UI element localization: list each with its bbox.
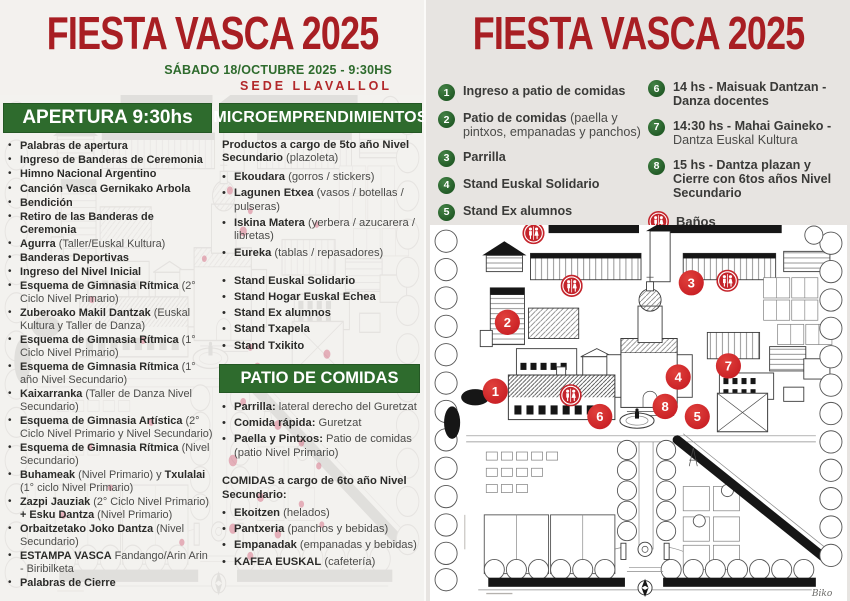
section-header-patio-de-comidas: PATIO DE COMIDAS	[219, 364, 420, 393]
bullet-icon: •	[8, 154, 20, 167]
legend-item: 714:30 hs - Mahai Gaineko - Dantza Euska…	[648, 119, 848, 148]
legend-item: 1Ingreso a patio de comidas	[438, 84, 644, 101]
bullet-icon: •	[8, 361, 20, 387]
bullet-icon: •	[8, 388, 20, 414]
list-item: •Himno Nacional Argentino	[8, 168, 213, 181]
bullet-icon: •	[8, 183, 20, 196]
legend-number-badge: 7	[648, 119, 665, 136]
list-item: •Empanadak (empanadas y bebidas)	[222, 539, 421, 553]
event-venue: SEDE LLAVALLOL	[164, 78, 392, 94]
map-marker: 1	[483, 379, 508, 404]
bullet-icon: •	[222, 417, 234, 431]
list-item: •Stand Euskal Solidario	[222, 275, 421, 289]
list-item: •Canción Vasca Gernikako Arbola	[8, 183, 213, 196]
map-marker: 3	[679, 270, 704, 295]
svg-text:4: 4	[675, 370, 683, 385]
micro-column: Productos a cargo de 5to año Nivel Secun…	[222, 139, 421, 572]
bullet-icon: •	[8, 469, 20, 495]
section-header-microemprendimientos: MICROEMPRENDIMIENTOS	[219, 103, 422, 133]
bullet-icon: •	[8, 252, 20, 265]
legend-column-2: 614 hs - Maisuak Dantzan - Danza docente…	[648, 80, 848, 232]
event-date-venue: SÁBADO 18/OCTUBRE 2025 - 9:30HS SEDE LLA…	[164, 63, 392, 94]
list-item: •Bendición	[8, 197, 213, 210]
legend-item: 815 hs - Dantza plazan y Cierre con 6tos…	[648, 158, 848, 201]
bullet-icon: •	[222, 523, 234, 537]
program-page: FIESTA VASCA 2025 SÁBADO 18/OCTUBRE 2025…	[0, 0, 424, 601]
list-item: •Orbaitzetako Joko Dantza (Nivel Secunda…	[8, 523, 213, 549]
bullet-icon: •	[8, 577, 20, 590]
legend-number-badge: 2	[438, 111, 455, 128]
legend-number-badge: 1	[438, 84, 455, 101]
list-item: •Stand Txikito	[222, 340, 421, 354]
list-item: •Esquema de Gimnasia Artística (2° Ciclo…	[8, 415, 213, 441]
bullet-icon: •	[222, 291, 234, 305]
map-marker: 5	[685, 404, 710, 429]
map-page: FIESTA VASCA 2025 1Ingreso a patio de co…	[426, 0, 850, 601]
micro-products-list: •Ekoudara (gorros / stickers)•Lagunen Et…	[222, 171, 421, 260]
list-item: •Esquema de Gimnasia Rítmica (1° año Niv…	[8, 361, 213, 387]
bullet-icon: •	[222, 171, 234, 185]
legend-number-badge: 4	[438, 177, 455, 194]
bullet-icon: •	[8, 140, 20, 153]
svg-text:2: 2	[504, 315, 511, 330]
list-item: •Palabras de apertura	[8, 140, 213, 153]
map-banos-icon	[560, 384, 582, 406]
micro-intro: Productos a cargo de 5to año Nivel Secun…	[222, 139, 421, 166]
bullet-icon: •	[222, 433, 234, 460]
bullet-icon: •	[222, 539, 234, 553]
bullet-icon: •	[222, 340, 234, 354]
legend-item: 614 hs - Maisuak Dantzan - Danza docente…	[648, 80, 848, 109]
list-item: •Esquema de Gimnasia Rítmica (1° Ciclo N…	[8, 334, 213, 360]
svg-text:6: 6	[596, 409, 603, 424]
list-item: •Paella y Pintxos: Patio de comidas (pat…	[222, 433, 421, 460]
svg-text:5: 5	[694, 409, 701, 424]
legend-item: 4Stand Euskal Solidario	[438, 177, 644, 194]
map-marker: 8	[653, 394, 678, 419]
svg-text:8: 8	[661, 399, 668, 414]
bullet-icon: •	[8, 496, 20, 522]
list-item: •Kaixarranka (Taller de Danza Nivel Secu…	[8, 388, 213, 414]
map-banos-icon	[561, 275, 583, 297]
bullet-icon: •	[222, 401, 234, 415]
bullet-icon: •	[8, 211, 20, 237]
bullet-icon: •	[222, 217, 234, 244]
list-item: •Esquema de Gimnasia Rítmica (2° Ciclo N…	[8, 280, 213, 306]
legend-item: 3Parrilla	[438, 150, 644, 167]
legend-number-badge: 5	[438, 204, 455, 221]
bullet-icon: •	[8, 415, 20, 441]
list-item: •Pantxeria (panchos y bebidas)	[222, 523, 421, 537]
event-date: SÁBADO 18/OCTUBRE 2025 - 9:30HS	[164, 63, 392, 78]
map-marker: 7	[716, 353, 741, 378]
list-item: •Stand Hogar Euskal Echea	[222, 291, 421, 305]
bullet-icon: •	[222, 507, 234, 521]
bullet-icon: •	[222, 187, 234, 214]
legend-item: 2Patio de comidas (paella y pintxos, emp…	[438, 111, 644, 140]
apertura-program-list: •Palabras de apertura•Ingreso de Bandera…	[8, 140, 213, 592]
list-item: •Eureka (tablas / repasadores)	[222, 247, 421, 261]
patio-list: •Parrilla: lateral derecho del Guretzat•…	[222, 401, 421, 461]
list-item: •Esquema de Gimnasia Rítmica (Nivel Secu…	[8, 442, 213, 468]
bullet-icon: •	[8, 197, 20, 210]
svg-text:1: 1	[492, 384, 499, 399]
svg-text:7: 7	[725, 358, 732, 373]
page-title: FIESTA VASCA 2025	[0, 6, 424, 60]
map-banos-icon	[716, 270, 738, 292]
list-item: •Zuberoako Makil Dantzak (Euskal Kultura…	[8, 307, 213, 333]
map-marker: 2	[495, 310, 520, 335]
bullet-icon: •	[222, 307, 234, 321]
list-item: •Agurra (Taller/Euskal Kultura)	[8, 238, 213, 251]
map-signature: Biko	[811, 589, 833, 599]
bullet-icon: •	[8, 266, 20, 279]
map-marker: 6	[587, 404, 612, 429]
list-item: •Palabras de Cierre	[8, 577, 213, 590]
bullet-icon: •	[222, 323, 234, 337]
page-title: FIESTA VASCA 2025	[426, 6, 850, 60]
list-item: •Parrilla: lateral derecho del Guretzat	[222, 401, 421, 415]
legend-item: 5Stand Ex alumnos	[438, 204, 644, 221]
map-legend: 1Ingreso a patio de comidas2Patio de com…	[432, 76, 846, 225]
list-item: •Retiro de las Banderas de Ceremonia	[8, 211, 213, 237]
site-map-svg: 12345678 Biko	[430, 225, 847, 601]
micro-stands-list: •Stand Euskal Solidario•Stand Hogar Eusk…	[222, 275, 421, 353]
bullet-icon: •	[8, 238, 20, 251]
list-item: •Ingreso de Banderas de Ceremonia	[8, 154, 213, 167]
comidas-list: •Ekoitzen (helados)•Pantxeria (panchos y…	[222, 507, 421, 569]
bullet-icon: •	[8, 550, 20, 576]
list-item: •Lagunen Etxea (vasos / botellas / pulse…	[222, 187, 421, 214]
svg-text:3: 3	[688, 275, 695, 290]
bullet-icon: •	[8, 307, 20, 333]
list-item: •KAFEA EUSKAL (cafetería)	[222, 556, 421, 570]
bullet-icon: •	[8, 168, 20, 181]
list-item: •Stand Ex alumnos	[222, 307, 421, 321]
legend-column-2-items: 614 hs - Maisuak Dantzan - Danza docente…	[648, 80, 848, 201]
section-header-apertura: APERTURA 9:30hs	[3, 103, 212, 133]
bullet-icon: •	[222, 247, 234, 261]
bullet-icon: •	[8, 442, 20, 468]
bullet-icon: •	[8, 523, 20, 549]
list-item: •Ekoudara (gorros / stickers)	[222, 171, 421, 185]
map-marker: 4	[666, 364, 691, 389]
bullet-icon: •	[222, 556, 234, 570]
list-item: •Stand Txapela	[222, 323, 421, 337]
list-item: •Buhameak (Nivel Primario) y Txulalai (1…	[8, 469, 213, 495]
comidas-heading: COMIDAS a cargo de 6to año Nivel Secunda…	[222, 475, 421, 502]
bullet-icon: •	[8, 280, 20, 306]
site-map: 12345678 Biko	[430, 225, 847, 601]
bullet-icon: •	[222, 275, 234, 289]
legend-number-badge: 3	[438, 150, 455, 167]
list-item: •ESTAMPA VASCA Fandango/Arin Arin - Biri…	[8, 550, 213, 576]
list-item: •Ekoitzen (helados)	[222, 507, 421, 521]
list-item: •Zazpi Jauziak (2° Ciclo Nivel Primario)…	[8, 496, 213, 522]
legend-number-badge: 6	[648, 80, 665, 97]
legend-column-1: 1Ingreso a patio de comidas2Patio de com…	[438, 84, 644, 231]
list-item: •Ingreso del Nivel Inicial	[8, 266, 213, 279]
list-item: •Iskina Matera (yerbera / azucarera / li…	[222, 217, 421, 244]
bullet-icon: •	[8, 334, 20, 360]
list-item: •Banderas Deportivas	[8, 252, 213, 265]
legend-number-badge: 8	[648, 158, 665, 175]
list-item: •Comida rápida: Guretzat	[222, 417, 421, 431]
